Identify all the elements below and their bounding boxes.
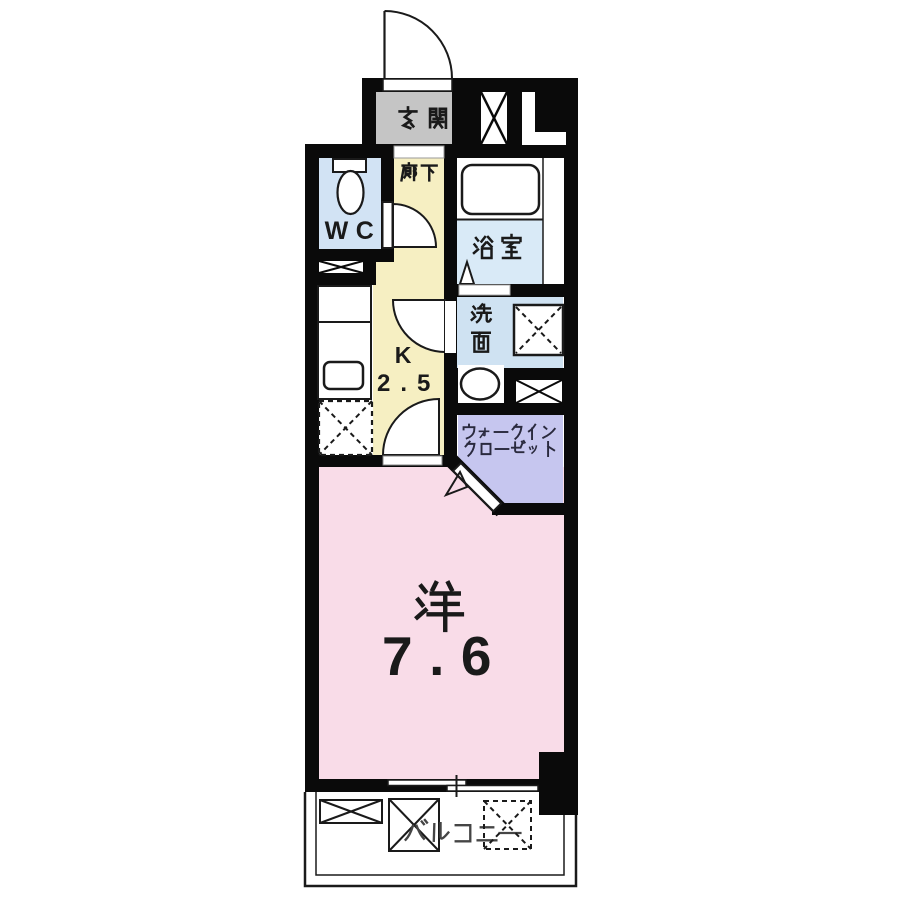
svg-text:K: K bbox=[395, 342, 412, 368]
svg-text:2.5: 2.5 bbox=[377, 370, 440, 397]
svg-text:WC: WC bbox=[325, 217, 382, 245]
svg-text:7.6: 7.6 bbox=[382, 625, 508, 687]
